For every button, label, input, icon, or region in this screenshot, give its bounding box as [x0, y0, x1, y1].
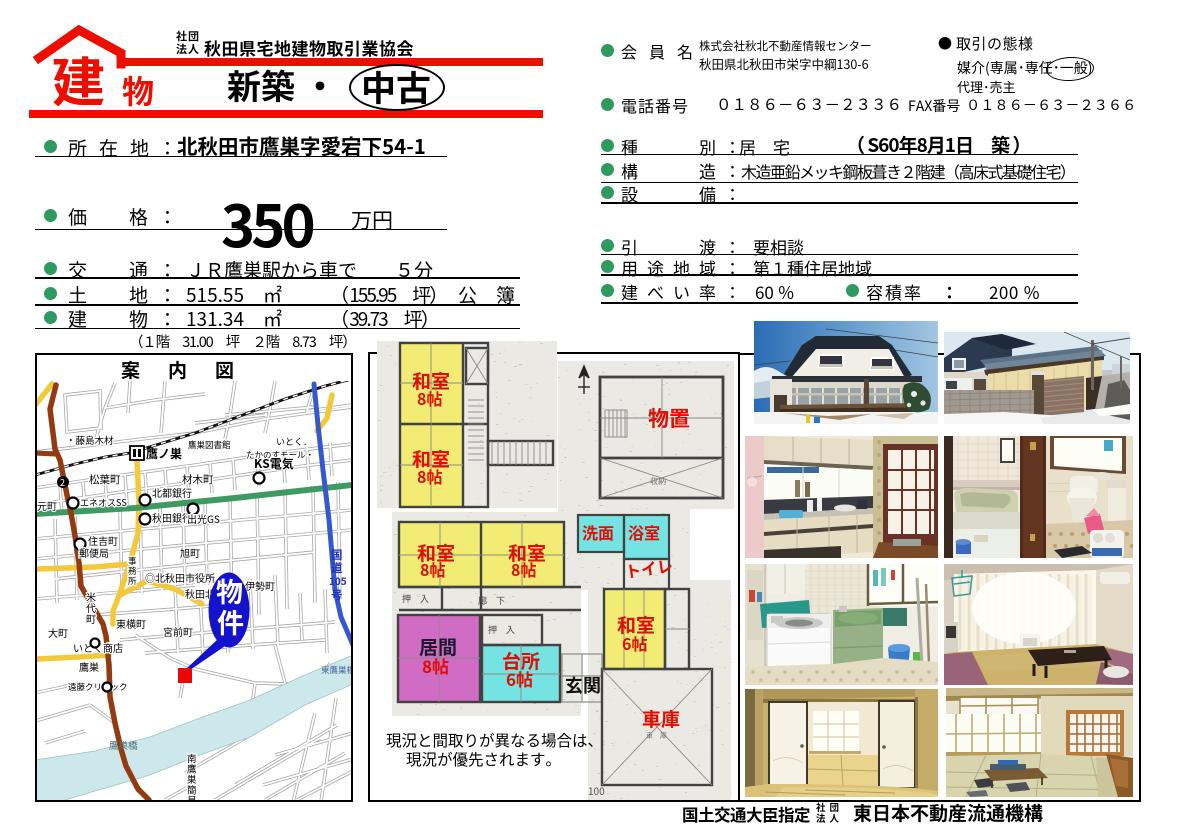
svg-text:浴室: 浴室 [628, 520, 660, 544]
svg-text:エネオスSS: エネオスSS [80, 496, 127, 509]
svg-text:鷹巣図書館: 鷹巣図書館 [188, 439, 231, 451]
svg-text:押 入: 押 入 [402, 592, 429, 605]
svg-text:105: 105 [329, 573, 347, 588]
svg-text:鷹巣橋: 鷹巣橋 [109, 738, 138, 752]
svg-text:東横町: 東横町 [116, 616, 146, 631]
svg-text:8帖: 8帖 [417, 386, 442, 410]
svg-text:100: 100 [588, 783, 605, 798]
svg-text:8帖: 8帖 [422, 653, 449, 678]
svg-text:8帖: 8帖 [420, 557, 445, 581]
svg-text:鷹巣: 鷹巣 [79, 659, 99, 674]
svg-text:宮前町: 宮前町 [163, 624, 193, 639]
svg-text:東鷹巣橋: 東鷹巣橋 [321, 664, 353, 676]
svg-text:車庫: 車庫 [642, 705, 680, 732]
svg-text:物置: 物置 [648, 403, 690, 433]
svg-text:いとく．: いとく． [276, 435, 312, 448]
svg-text:郵便局: 郵便局 [79, 545, 109, 560]
svg-text:遠藤クリニック: 遠藤クリニック [68, 681, 128, 693]
svg-text:案内図: 案内図 [121, 356, 262, 383]
svg-text:6帖: 6帖 [622, 631, 647, 655]
svg-text:車 庫: 車 庫 [646, 731, 667, 741]
svg-text:所: 所 [128, 575, 137, 587]
svg-text:伊勢町: 伊勢町 [245, 578, 275, 593]
svg-text:◎北秋田市役所: ◎北秋田市役所 [145, 570, 215, 585]
svg-text:町: 町 [86, 611, 96, 626]
svg-text:8帖: 8帖 [417, 464, 442, 488]
svg-text:6帖: 6帖 [506, 666, 533, 691]
svg-text:8帖: 8帖 [511, 557, 536, 581]
svg-text:・藤島木材: ・藤島木材 [66, 433, 114, 447]
svg-text:KS電気: KS電気 [254, 455, 294, 472]
svg-text:元町: 元町 [37, 498, 57, 513]
svg-text:号: 号 [331, 587, 343, 603]
svg-text:松葉町: 松葉町 [89, 472, 121, 487]
svg-text:大町: 大町 [48, 625, 68, 640]
svg-text:洗面: 洗面 [582, 520, 614, 544]
svg-text:出光GS: 出光GS [187, 511, 220, 526]
svg-text:鷹ノ巣: 鷹ノ巣 [146, 445, 182, 462]
svg-text:押 入: 押 入 [488, 623, 515, 636]
svg-text:旭町: 旭町 [180, 545, 200, 560]
svg-text:2: 2 [60, 476, 65, 489]
svg-text:北都銀行: 北都銀行 [152, 485, 192, 500]
svg-text:現況が優先されます。: 現況が優先されます。 [406, 748, 561, 770]
svg-text:収納: 収納 [650, 476, 666, 487]
svg-text:秋田銀行: 秋田銀行 [152, 510, 192, 525]
svg-text:廊 下: 廊 下 [478, 594, 505, 607]
svg-text:件: 件 [217, 602, 244, 641]
